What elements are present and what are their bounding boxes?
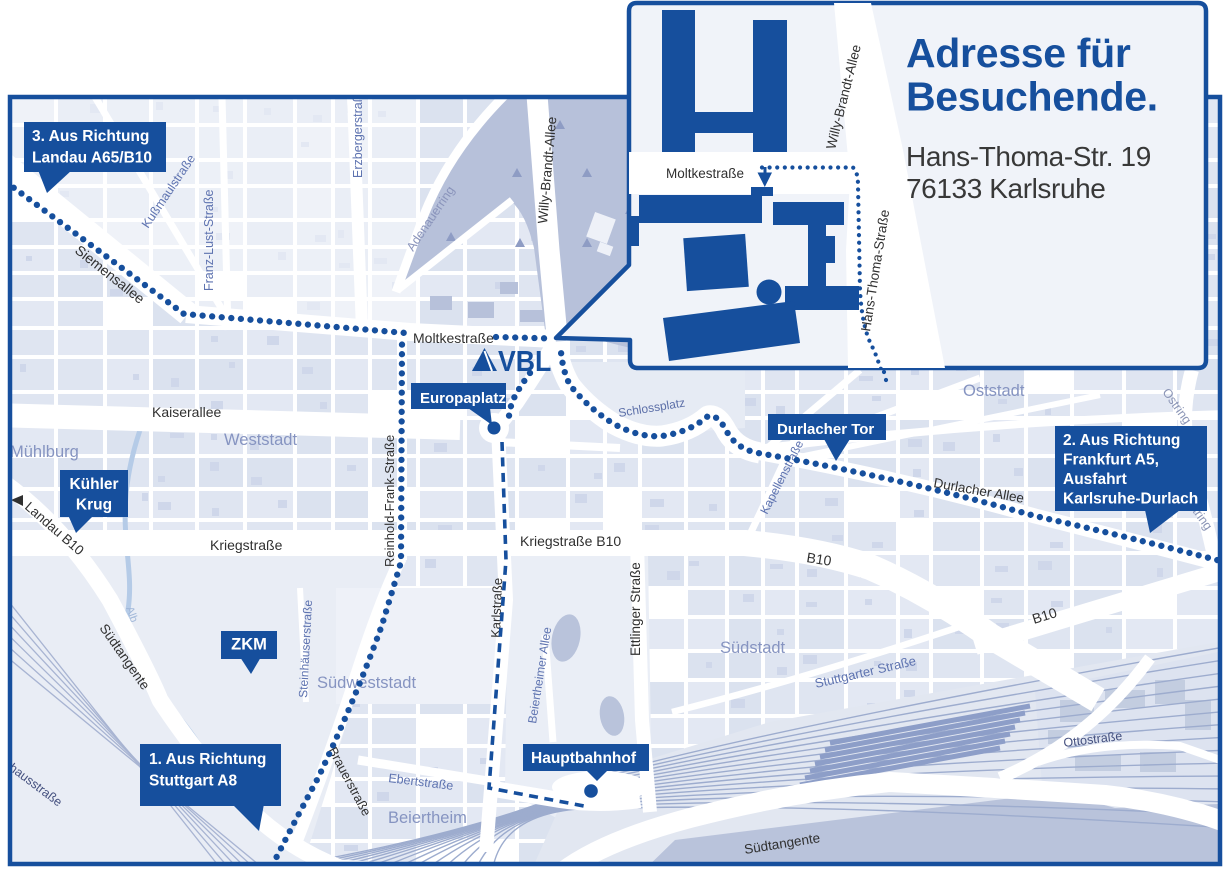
svg-text:Kriegstraße: Kriegstraße	[210, 537, 283, 553]
svg-text:Mühlburg: Mühlburg	[10, 443, 79, 461]
svg-text:Weststadt: Weststadt	[224, 431, 297, 449]
svg-text:Südweststadt: Südweststadt	[317, 674, 416, 692]
svg-text:Südstadt: Südstadt	[720, 639, 786, 657]
svg-text:ZKM: ZKM	[231, 635, 267, 653]
svg-text:Kaiserallee: Kaiserallee	[152, 404, 221, 420]
svg-text:Landau A65/B10: Landau A65/B10	[32, 150, 152, 167]
svg-text:Reinhold-Frank-Straße: Reinhold-Frank-Straße	[382, 435, 397, 567]
svg-text:Beiertheim: Beiertheim	[388, 809, 467, 827]
svg-text:2. Aus Richtung: 2. Aus Richtung	[1063, 432, 1180, 449]
svg-text:Besuchende.: Besuchende.	[906, 74, 1158, 120]
svg-text:Europaplatz: Europaplatz	[420, 390, 506, 407]
svg-text:Oststadt: Oststadt	[963, 382, 1025, 400]
svg-text:Karlsruhe-Durlach: Karlsruhe-Durlach	[1063, 491, 1198, 508]
svg-text:1. Aus Richtung: 1. Aus Richtung	[149, 751, 266, 768]
svg-text:Kühler: Kühler	[69, 476, 118, 493]
svg-text:Kriegstraße B10: Kriegstraße B10	[520, 533, 621, 549]
svg-text:Erzbergerstraße: Erzbergerstraße	[351, 88, 365, 178]
svg-text:Stuttgart A8: Stuttgart A8	[149, 773, 237, 790]
svg-text:Moltkestraße: Moltkestraße	[666, 166, 744, 181]
svg-text:VBL: VBL	[498, 345, 551, 377]
svg-text:Durlacher Tor: Durlacher Tor	[777, 421, 874, 438]
svg-text:76133 Karlsruhe: 76133 Karlsruhe	[906, 173, 1105, 204]
svg-text:Frankfurt A5,: Frankfurt A5,	[1063, 452, 1159, 469]
svg-text:Hans-Thoma-Str. 19: Hans-Thoma-Str. 19	[906, 141, 1151, 172]
svg-text:Ausfahrt: Ausfahrt	[1063, 471, 1127, 488]
svg-text:3. Aus Richtung: 3. Aus Richtung	[32, 128, 149, 145]
svg-text:Krug: Krug	[76, 497, 112, 514]
svg-text:Franz-Lust-Straße: Franz-Lust-Straße	[202, 190, 216, 291]
svg-text:Moltkestraße: Moltkestraße	[413, 330, 494, 346]
svg-text:Ettlinger Straße: Ettlinger Straße	[628, 562, 643, 656]
svg-text:Hauptbahnhof: Hauptbahnhof	[531, 750, 637, 767]
svg-text:Adresse für: Adresse für	[906, 30, 1131, 76]
